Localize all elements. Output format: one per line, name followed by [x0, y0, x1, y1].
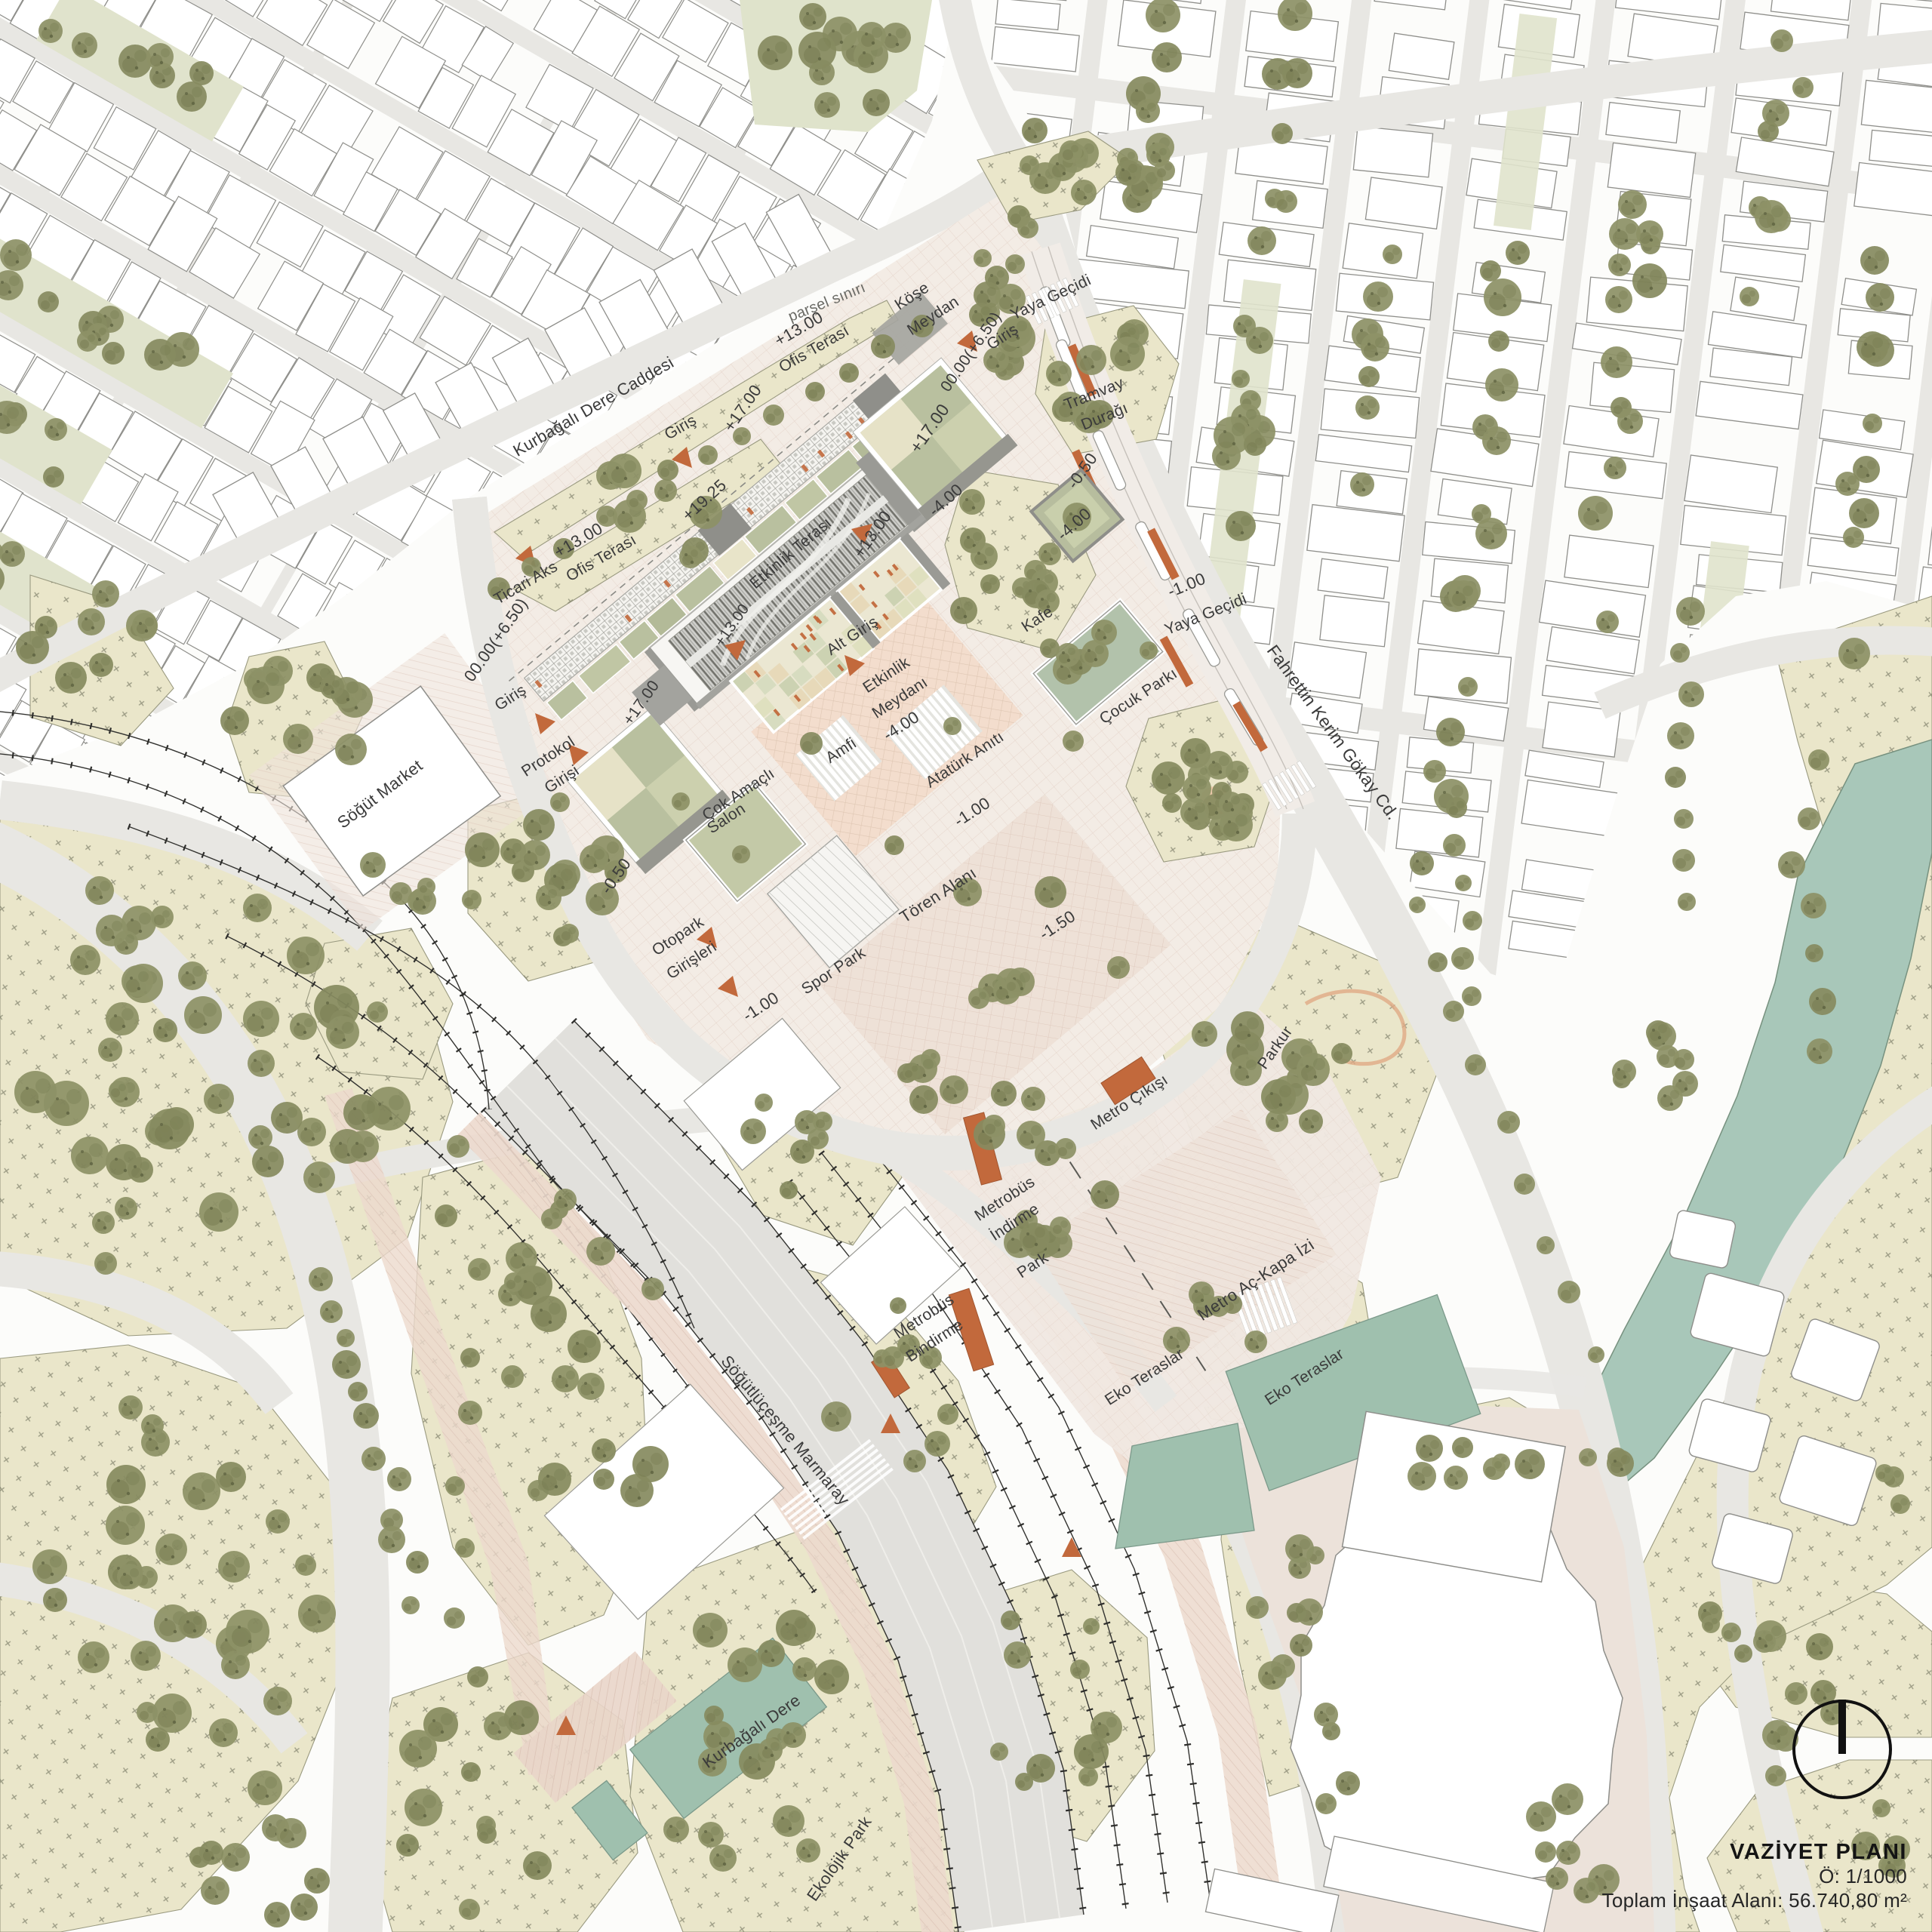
svg-text:VAZİYET PLANI: VAZİYET PLANI	[1730, 1840, 1907, 1864]
svg-text:Toplam İnşaat Alanı: 56.740,80: Toplam İnşaat Alanı: 56.740,80 m²	[1602, 1889, 1908, 1912]
svg-text:Ö: 1/1000: Ö: 1/1000	[1819, 1865, 1907, 1887]
